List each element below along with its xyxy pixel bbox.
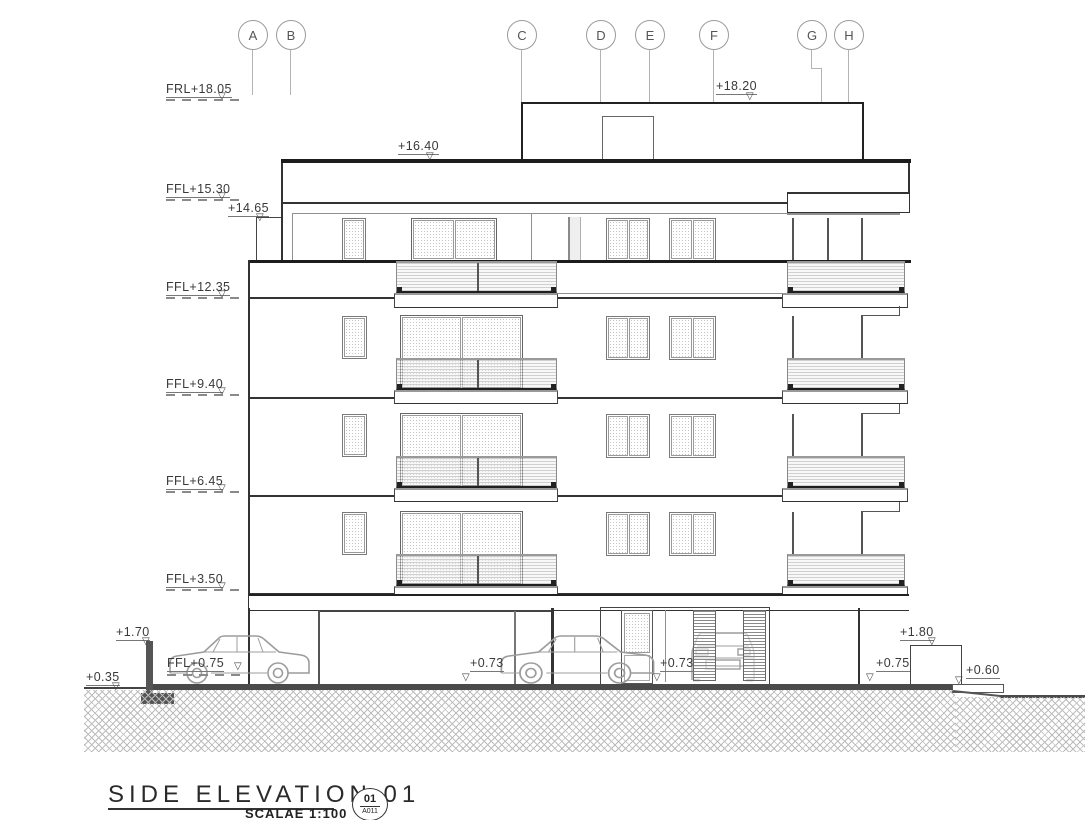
window-double xyxy=(606,218,650,261)
loggia-soffit-line xyxy=(861,413,900,414)
car-side-center xyxy=(497,627,659,687)
loggia-edge-line xyxy=(827,218,829,261)
earth-hatch xyxy=(955,697,1085,752)
scale-note: SCALAE 1:100 xyxy=(245,806,347,820)
level-arrow-icon: ▽ xyxy=(928,637,936,647)
grid-bubble-e: E xyxy=(635,20,665,50)
grid-label: H xyxy=(844,28,853,43)
level-arrow-icon: ▽ xyxy=(112,682,120,692)
ground-right-wall xyxy=(858,608,860,684)
loggia-soffit-line xyxy=(899,306,900,316)
window-glass xyxy=(629,318,649,358)
window-glass xyxy=(693,220,714,259)
floor-level-1 xyxy=(0,496,1088,600)
grid-label: F xyxy=(710,28,718,43)
ground-slab-band xyxy=(249,594,909,611)
band-bottom-line xyxy=(557,297,788,299)
window-double xyxy=(606,512,650,556)
window-glass xyxy=(608,318,628,358)
band-inner-line xyxy=(557,293,788,294)
grid-bubble-g: G xyxy=(797,20,827,50)
grid-line-b xyxy=(290,50,291,95)
window-glass xyxy=(629,220,649,259)
loggia-edge-line xyxy=(792,316,794,358)
band-bottom-line xyxy=(249,297,397,299)
spot-level: FFL+0.75 xyxy=(167,656,224,672)
window-double xyxy=(669,512,716,556)
grid-label: E xyxy=(646,28,655,43)
window-glass xyxy=(671,318,692,358)
grid-label: D xyxy=(596,28,605,43)
level-arrow-icon: ▽ xyxy=(653,673,661,683)
terrace-wall-left-line xyxy=(292,213,293,261)
window-glass xyxy=(671,514,692,554)
window-glass xyxy=(608,514,628,554)
loggia-soffit-line xyxy=(861,511,900,512)
window-glass xyxy=(344,416,365,455)
spot-level: +0.60 xyxy=(966,663,1000,679)
balcony-balustrade xyxy=(396,554,557,587)
detail-number: 01 xyxy=(360,794,380,807)
window-glass xyxy=(671,220,692,259)
grid-bubble-d: D xyxy=(586,20,616,50)
loggia-soffit-line xyxy=(899,404,900,414)
balustrade-post xyxy=(477,458,479,486)
window-single xyxy=(342,414,367,457)
balcony-balustrade xyxy=(396,261,557,294)
window-single xyxy=(342,512,367,555)
grid-line-g xyxy=(811,50,812,69)
wall-edge-line xyxy=(281,202,283,261)
window-glass xyxy=(344,220,364,259)
window-glass xyxy=(693,416,714,456)
window-double xyxy=(669,414,716,458)
level-arrow-icon: ▽ xyxy=(426,152,434,162)
loggia-edge-line xyxy=(792,218,794,261)
level-arrow-icon: ▽ xyxy=(866,673,874,683)
level-arrow-icon: ▽ xyxy=(256,213,264,223)
grid-line-g-lower xyxy=(821,68,822,102)
loggia-edge-line xyxy=(792,414,794,456)
window-glass xyxy=(344,514,365,553)
terrace-parapet-wall xyxy=(256,217,283,262)
window-glass xyxy=(608,416,628,456)
grid-label: C xyxy=(517,28,526,43)
balustrade-post xyxy=(477,263,479,291)
loggia-edge-line xyxy=(792,512,794,554)
level-arrow-icon: ▽ xyxy=(462,673,470,683)
retaining-wall xyxy=(146,641,153,694)
window-double xyxy=(606,316,650,360)
grid-label: A xyxy=(249,28,258,43)
grid-bubble-b: B xyxy=(276,20,306,50)
balcony-balustrade xyxy=(787,261,905,294)
window-glass xyxy=(693,318,714,358)
detail-reference-bubble: 01 A011 xyxy=(352,788,388,820)
balcony-balustrade xyxy=(396,358,557,391)
door-glass xyxy=(455,220,496,259)
level-arrow-icon: ▽ xyxy=(955,676,963,686)
balustrade-post xyxy=(477,360,479,388)
balustrade-post xyxy=(477,556,479,584)
door-glass xyxy=(413,220,454,259)
garage-pier xyxy=(318,611,320,685)
grid-bubble-f: F xyxy=(699,20,729,50)
spot-level: +0.73 xyxy=(470,656,504,672)
terrace-wall-top-line xyxy=(292,213,862,214)
balcony-balustrade xyxy=(396,456,557,489)
balcony-balustrade xyxy=(787,358,905,391)
window-single xyxy=(342,218,366,261)
grid-line-e xyxy=(649,50,650,102)
grid-bubble-a: A xyxy=(238,20,268,50)
loggia-edge-line xyxy=(861,414,863,456)
level-dash xyxy=(166,297,246,299)
spot-level: +0.73 xyxy=(660,656,694,672)
window-glass xyxy=(608,220,628,259)
loggia-soffit-line xyxy=(899,502,900,512)
roof-bulkhead xyxy=(602,116,654,161)
grid-line-d xyxy=(600,50,601,102)
window-double xyxy=(669,316,716,360)
grid-line-f xyxy=(713,50,714,102)
earth-hatch xyxy=(84,690,955,752)
loggia-edge-line xyxy=(861,512,863,554)
right-fascia-slab xyxy=(787,192,910,213)
window-glass xyxy=(629,514,649,554)
loggia-soffit-line xyxy=(861,315,900,316)
grid-label: G xyxy=(807,28,817,43)
terrace-door-double xyxy=(411,218,497,261)
terrace-pillar xyxy=(568,217,581,261)
window-glass xyxy=(344,318,365,357)
grid-label: B xyxy=(287,28,296,43)
window-single xyxy=(342,316,367,359)
window-double xyxy=(669,218,716,261)
grid-line-c xyxy=(521,50,522,102)
grid-bubble-c: C xyxy=(507,20,537,50)
window-glass xyxy=(671,416,692,456)
fascia-bottom-line xyxy=(281,202,788,204)
balcony-balustrade xyxy=(787,554,905,587)
louver-panel xyxy=(693,610,716,681)
window-glass xyxy=(693,514,714,554)
level-dash xyxy=(167,674,245,676)
spot-level: +0.75 xyxy=(876,656,910,672)
grid-line-h xyxy=(848,50,849,102)
penthouse-parapet xyxy=(521,102,864,162)
window-glass xyxy=(629,416,649,456)
floor-level-3 xyxy=(0,300,1088,404)
level-arrow-icon: ▽ xyxy=(234,662,242,672)
level-arrow-icon: ▽ xyxy=(746,92,754,102)
loggia-edge-line xyxy=(861,218,863,261)
sheet-number: A011 xyxy=(362,807,378,815)
terrace-recess-edge xyxy=(531,214,532,261)
floor-level-2 xyxy=(0,398,1088,502)
level-arrow-icon: ▽ xyxy=(142,637,150,647)
window-double xyxy=(606,414,650,458)
grid-line-a xyxy=(252,50,253,95)
garage-header-line xyxy=(318,610,552,612)
balcony-balustrade xyxy=(787,456,905,489)
elevation-sheet: A B C D E F G H FRL+18.05 ▽ FFL+15.30 ▽ … xyxy=(0,0,1088,820)
loggia-edge-line xyxy=(861,316,863,358)
level-dash xyxy=(166,99,246,101)
grid-bubble-h: H xyxy=(834,20,864,50)
louver-panel xyxy=(743,610,766,681)
